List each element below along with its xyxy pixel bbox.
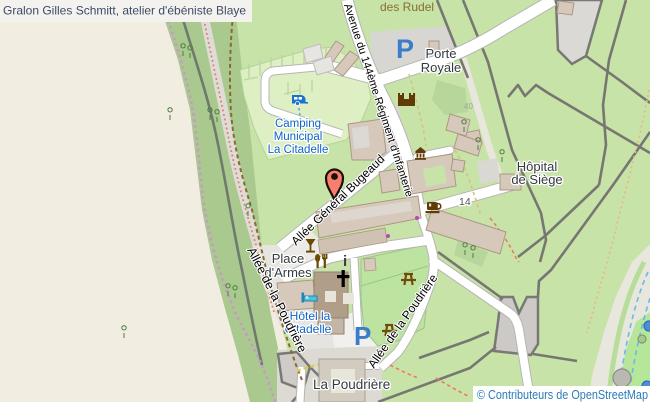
- svg-text:de Siège: de Siège: [511, 172, 562, 187]
- svg-text:Municipal: Municipal: [274, 131, 323, 143]
- svg-text:40: 40: [464, 102, 473, 111]
- svg-text:P: P: [396, 34, 414, 64]
- svg-text:La Citadelle: La Citadelle: [268, 144, 329, 156]
- svg-text:© Contributeurs de OpenStreetM: © Contributeurs de OpenStreetMap: [477, 387, 648, 402]
- svg-text:i: i: [343, 253, 347, 270]
- svg-text:des Rudel: des Rudel: [380, 0, 434, 14]
- svg-text:Place: Place: [272, 251, 305, 266]
- svg-text:P: P: [354, 321, 371, 351]
- svg-text:Royale: Royale: [421, 60, 461, 75]
- svg-text:14: 14: [459, 196, 471, 208]
- svg-text:Gralon Gilles Schmitt, atelier: Gralon Gilles Schmitt, atelier d'ébénist…: [3, 4, 246, 18]
- svg-text:Camping: Camping: [275, 118, 321, 130]
- svg-text:La Poudrière: La Poudrière: [313, 377, 390, 392]
- svg-text:Porte: Porte: [425, 46, 456, 61]
